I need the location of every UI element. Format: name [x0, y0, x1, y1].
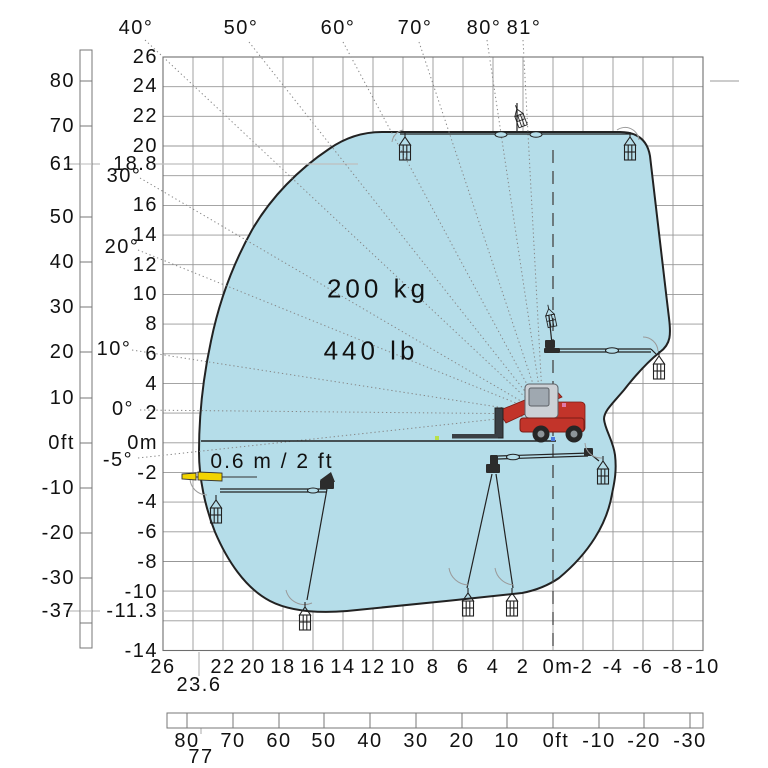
left-m-tick-label: 6: [145, 344, 158, 364]
boom-angle-label: 30°: [107, 166, 142, 186]
boom-angle-label: 40°: [119, 18, 154, 38]
left-m-tick-label: -10: [125, 582, 158, 602]
capacity-lb-label: 440 lb: [324, 336, 419, 367]
left-m-tick-label: 12: [133, 255, 158, 275]
boom-angle-label: 50°: [224, 18, 259, 38]
left-m-tick-label: 16: [133, 195, 158, 215]
bottom-m-tick-label: 26: [150, 657, 175, 677]
cad-marker-green: [435, 436, 439, 440]
bottom-ft-tick-label: 70: [220, 731, 245, 751]
cad-marker-blue: [551, 437, 555, 441]
boom-angle-label: 81°: [507, 18, 542, 38]
max-reach-ft-label: 77: [188, 747, 213, 767]
left-ft-tick-label: 10: [50, 388, 75, 408]
left-m-tick-label: -8: [137, 552, 158, 572]
bottom-ft-tick-label: 60: [266, 731, 291, 751]
boom-link: [308, 488, 319, 493]
bottom-m-tick-label: 14: [330, 657, 355, 677]
left-m-tick-label: 26: [133, 47, 158, 67]
boom-angle-label: 70°: [398, 18, 433, 38]
left-ft-tick-label: 20: [50, 342, 75, 362]
bottom-ft-tick-label: 40: [357, 731, 382, 751]
left-ft-tick-label: 80: [50, 71, 75, 91]
bottom-ft-tick-label: 10: [494, 731, 519, 751]
left-m-tick-label: 4: [145, 374, 158, 394]
bottom-m-tick-label: 12: [360, 657, 385, 677]
bottom-m-tick-label: 4: [487, 657, 500, 677]
bottom-ft-tick-label: -20: [627, 731, 660, 751]
bottom-ft-tick-label: 30: [403, 731, 428, 751]
left-ft-tick-label: -10: [42, 478, 75, 498]
left-ft-tick-label: -20: [42, 523, 75, 543]
forks: [452, 434, 498, 439]
boom-angle-label: 10°: [97, 339, 132, 359]
bottom-m-tick-label: 20: [240, 657, 265, 677]
bottom-m-tick-label: -10: [686, 657, 719, 677]
left-ft-tick-label: 61: [50, 154, 75, 174]
cad-marker-pink: [562, 403, 566, 407]
left-m-tick-label: 2: [145, 403, 158, 423]
cab-window: [529, 388, 549, 406]
left-m-tick-label: -2: [137, 463, 158, 483]
bottom-ft-tick-label: 20: [449, 731, 474, 751]
reach-note-label: 0.6 m / 2 ft: [210, 450, 333, 474]
bottom-ft-tick-label: -10: [582, 731, 615, 751]
left-m-tick-label: 10: [133, 284, 158, 304]
bottom-ft-ruler: [167, 713, 703, 728]
left-m-tick-label: 22: [133, 106, 158, 126]
bottom-ft-tick-label: -30: [673, 731, 706, 751]
boom-link: [507, 454, 520, 460]
bottom-m-tick-label: -2: [573, 657, 594, 677]
bottom-m-tick-label: -4: [603, 657, 624, 677]
bottom-ft-tick-label: 0ft: [543, 731, 570, 751]
left-ft-tick-label: 50: [50, 207, 75, 227]
bottom-m-tick-label: 8: [427, 657, 440, 677]
bottom-ft-tick-label: 50: [311, 731, 336, 751]
left-ft-ruler: [80, 50, 92, 648]
left-ft-tick-label: 30: [50, 297, 75, 317]
bottom-m-tick-label: 10: [390, 657, 415, 677]
boom-angle-label: 60°: [321, 18, 356, 38]
boom-link: [606, 348, 619, 354]
bottom-m-tick-label: 18: [270, 657, 295, 677]
bottom-m-tick-label: 2: [517, 657, 530, 677]
boom-angle-label: -5°: [103, 450, 133, 470]
left-ft-tick-label: 70: [50, 116, 75, 136]
bottom-m-tick-label: -8: [663, 657, 684, 677]
working-range-chart: 2624222018.81614121086420m-2-4-6-8-10-11…: [0, 0, 768, 768]
winch-hook-icon: [511, 104, 527, 128]
left-ft-tick-label: 0ft: [48, 433, 75, 453]
bottom-m-tick-label: 0m: [543, 657, 574, 677]
left-ft-tick-label: 40: [50, 252, 75, 272]
boom-link: [530, 132, 542, 138]
working-envelope-area: [199, 132, 670, 612]
bottom-m-tick-label: -6: [633, 657, 654, 677]
capacity-kg-label: 200 kg: [327, 274, 429, 305]
left-ft-tick-label: -30: [42, 568, 75, 588]
fork-carriage: [495, 408, 503, 438]
boom-angle-label: 20°: [105, 237, 140, 257]
boom-link: [495, 132, 507, 138]
left-m-tick-label: -6: [137, 522, 158, 542]
diagram-canvas: [0, 0, 768, 768]
boom-angle-label: 80°: [467, 18, 502, 38]
boom-angle-label: 0°: [112, 399, 134, 419]
bottom-m-tick-label: 16: [300, 657, 325, 677]
left-m-tick-label: -11.3: [106, 601, 158, 621]
left-m-tick-label: -4: [137, 492, 158, 512]
max-reach-m-label: 23.6: [177, 675, 222, 695]
left-m-tick-label: 24: [133, 76, 158, 96]
bottom-m-tick-label: 6: [457, 657, 470, 677]
left-ft-tick-label: -37: [42, 601, 75, 621]
left-m-tick-label: 8: [145, 314, 158, 334]
